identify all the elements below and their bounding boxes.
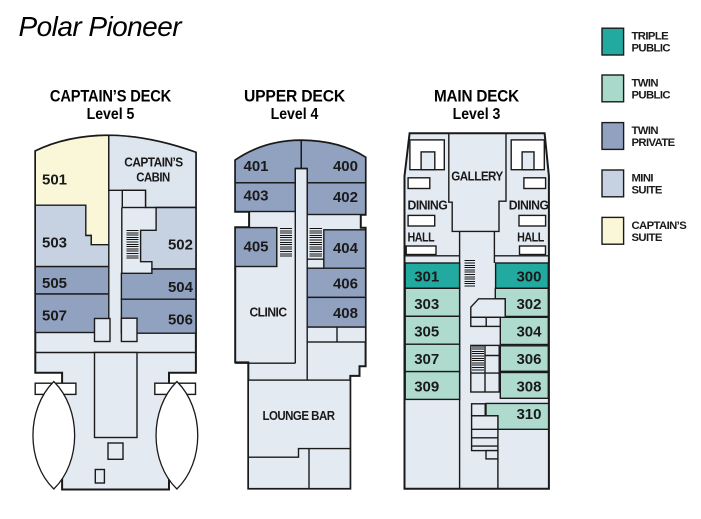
svg-text:SUITE: SUITE bbox=[632, 232, 663, 244]
svg-text:501: 501 bbox=[42, 172, 67, 189]
svg-text:Level 4: Level 4 bbox=[271, 106, 319, 123]
svg-text:HALL: HALL bbox=[517, 230, 544, 244]
svg-text:507: 507 bbox=[42, 308, 67, 325]
svg-text:DINING: DINING bbox=[408, 199, 448, 213]
svg-text:502: 502 bbox=[168, 236, 193, 253]
svg-text:306: 306 bbox=[516, 351, 541, 368]
svg-text:305: 305 bbox=[414, 324, 439, 341]
svg-text:PUBLIC: PUBLIC bbox=[632, 89, 671, 101]
svg-text:310: 310 bbox=[516, 406, 541, 423]
svg-text:CLINIC: CLINIC bbox=[250, 306, 287, 320]
svg-text:300: 300 bbox=[516, 269, 541, 286]
svg-text:404: 404 bbox=[333, 240, 359, 257]
svg-text:DINING: DINING bbox=[509, 199, 549, 213]
svg-text:309: 309 bbox=[414, 379, 439, 396]
svg-text:401: 401 bbox=[244, 158, 269, 175]
svg-text:Level 5: Level 5 bbox=[87, 106, 135, 123]
svg-text:408: 408 bbox=[333, 305, 358, 322]
svg-text:Polar Pioneer: Polar Pioneer bbox=[19, 11, 184, 42]
svg-text:405: 405 bbox=[244, 239, 269, 256]
svg-text:302: 302 bbox=[516, 296, 541, 313]
svg-text:CAPTAIN’S: CAPTAIN’S bbox=[632, 220, 688, 232]
svg-text:PUBLIC: PUBLIC bbox=[632, 42, 671, 54]
svg-text:504: 504 bbox=[168, 279, 194, 296]
svg-text:304: 304 bbox=[516, 324, 542, 341]
svg-text:400: 400 bbox=[333, 158, 358, 175]
svg-text:GALLERY: GALLERY bbox=[451, 170, 504, 184]
svg-text:307: 307 bbox=[414, 351, 439, 368]
svg-text:MINI: MINI bbox=[632, 172, 654, 184]
svg-text:308: 308 bbox=[516, 379, 541, 396]
svg-text:402: 402 bbox=[333, 189, 358, 206]
svg-text:303: 303 bbox=[414, 296, 439, 313]
svg-text:SUITE: SUITE bbox=[632, 184, 663, 196]
svg-text:PRIVATE: PRIVATE bbox=[632, 137, 676, 149]
svg-text:TWIN: TWIN bbox=[632, 77, 659, 89]
svg-text:Level 3: Level 3 bbox=[453, 106, 501, 123]
svg-text:403: 403 bbox=[244, 188, 269, 205]
svg-text:CAPTAIN’S: CAPTAIN’S bbox=[124, 155, 183, 169]
svg-text:503: 503 bbox=[42, 235, 67, 252]
svg-text:TRIPLE: TRIPLE bbox=[632, 30, 670, 42]
svg-text:LOUNGE BAR: LOUNGE BAR bbox=[262, 409, 335, 423]
svg-text:UPPER DECK: UPPER DECK bbox=[244, 87, 346, 106]
svg-text:HALL: HALL bbox=[408, 230, 435, 244]
svg-text:MAIN DECK: MAIN DECK bbox=[434, 87, 520, 106]
svg-text:TWIN: TWIN bbox=[632, 125, 659, 137]
svg-text:506: 506 bbox=[168, 312, 193, 329]
svg-text:CAPTAIN’S DECK: CAPTAIN’S DECK bbox=[50, 87, 172, 106]
svg-text:406: 406 bbox=[333, 276, 358, 293]
svg-text:505: 505 bbox=[42, 275, 67, 292]
svg-text:CABIN: CABIN bbox=[136, 170, 170, 184]
svg-text:301: 301 bbox=[414, 269, 439, 286]
